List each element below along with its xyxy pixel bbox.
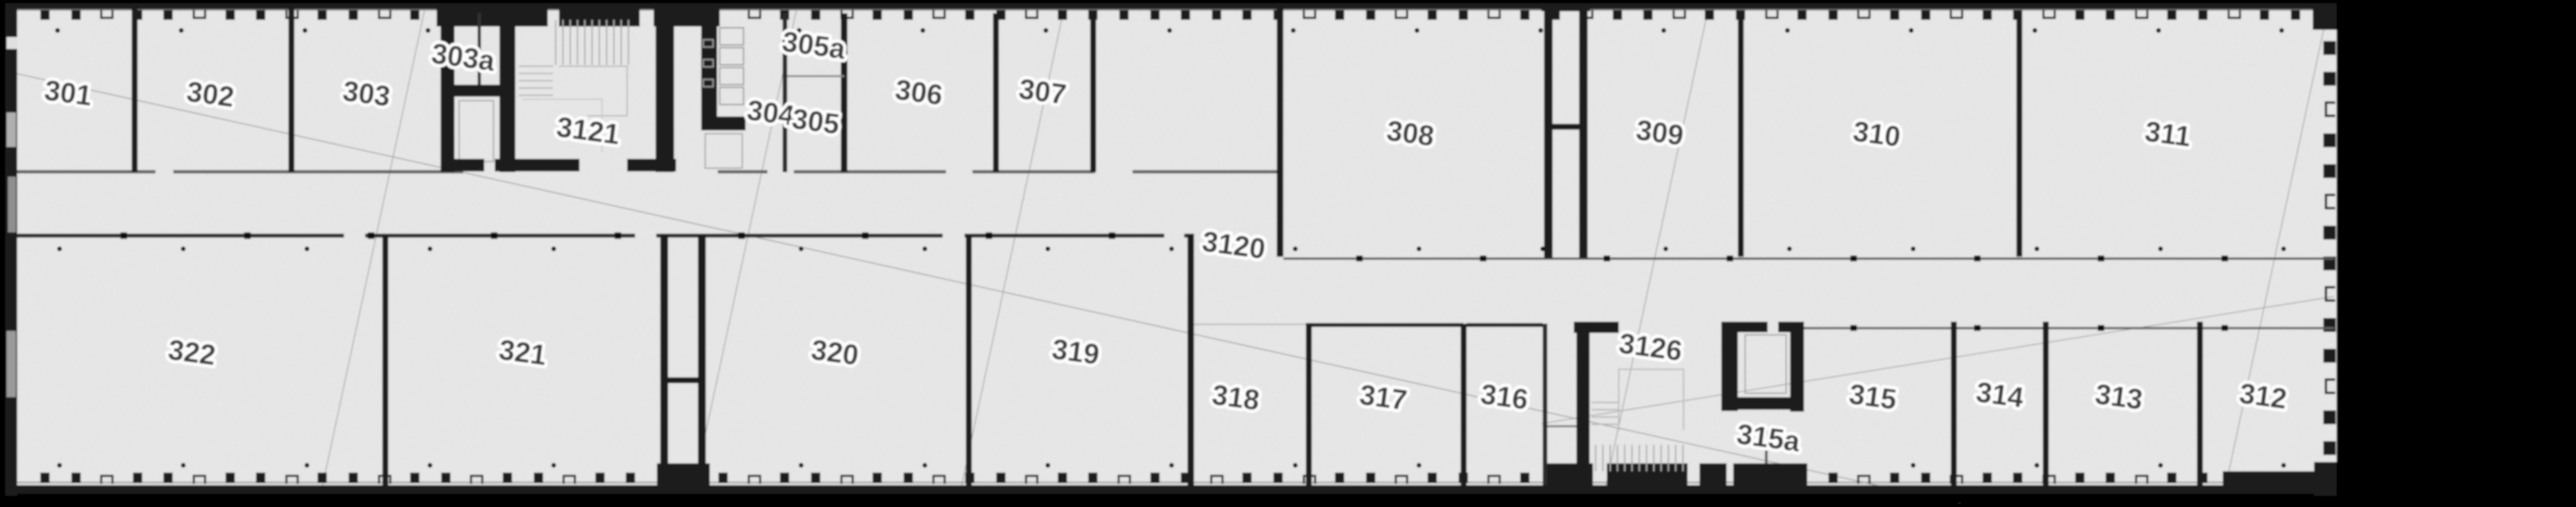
svg-text:308: 308 xyxy=(1385,115,1436,153)
svg-text:310: 310 xyxy=(1851,116,1902,154)
svg-text:314: 314 xyxy=(1974,377,2025,414)
svg-text:317: 317 xyxy=(1357,379,1408,417)
svg-text:303: 303 xyxy=(341,75,392,113)
svg-text:309: 309 xyxy=(1634,115,1685,152)
svg-text:306: 306 xyxy=(893,74,944,112)
svg-text:316: 316 xyxy=(1479,379,1529,416)
svg-text:307: 307 xyxy=(1017,73,1068,111)
svg-text:320: 320 xyxy=(809,334,860,372)
svg-text:313: 313 xyxy=(2093,379,2144,416)
svg-text:315: 315 xyxy=(1847,379,1898,416)
svg-text:318: 318 xyxy=(1210,379,1261,417)
svg-text:304: 304 xyxy=(745,95,796,132)
svg-text:311: 311 xyxy=(2143,116,2192,154)
svg-text:319: 319 xyxy=(1050,334,1101,371)
svg-text:312: 312 xyxy=(2237,378,2288,416)
svg-text:301: 301 xyxy=(42,75,93,113)
svg-text:302: 302 xyxy=(185,76,236,114)
svg-text:305: 305 xyxy=(790,103,841,141)
svg-text:321: 321 xyxy=(497,334,548,372)
svg-text:322: 322 xyxy=(166,334,217,372)
